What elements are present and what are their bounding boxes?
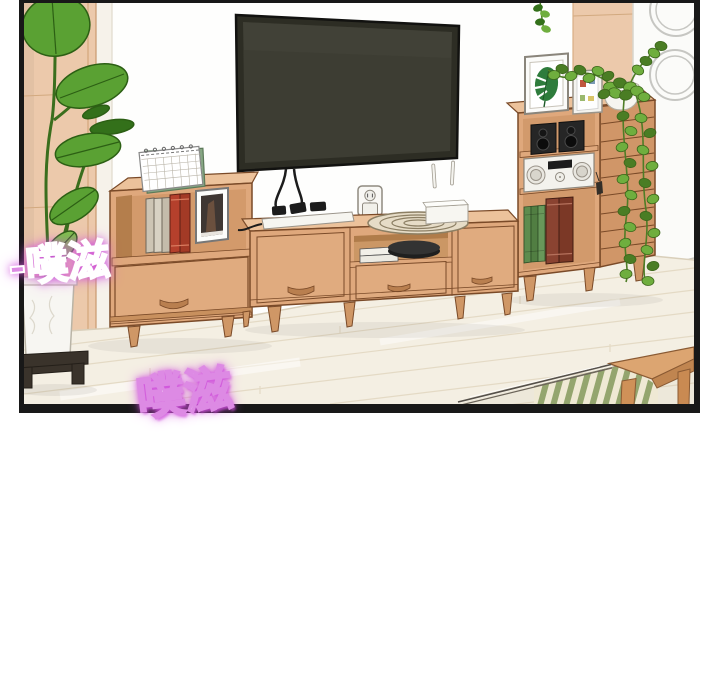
books-green xyxy=(524,205,545,263)
books-beige xyxy=(146,198,170,254)
webtoon-panel-page: -噗滋 噗滋 xyxy=(0,0,720,700)
books-maroon xyxy=(546,197,573,264)
speaker-right xyxy=(559,121,584,153)
photo-frame xyxy=(196,188,228,243)
door-key-handle xyxy=(596,181,603,195)
panel-scene xyxy=(0,0,720,700)
desk-calendar xyxy=(139,144,205,193)
white-planter xyxy=(20,277,77,356)
books-red xyxy=(170,194,190,254)
side-table-leg xyxy=(621,379,636,406)
console-drawer-right xyxy=(458,226,514,292)
monstera-frame xyxy=(525,54,568,115)
media-box-2 xyxy=(360,254,398,263)
television xyxy=(236,15,459,171)
stereo-receiver xyxy=(524,153,594,192)
speaker-left xyxy=(531,123,556,155)
console-drawer-left xyxy=(257,233,344,304)
